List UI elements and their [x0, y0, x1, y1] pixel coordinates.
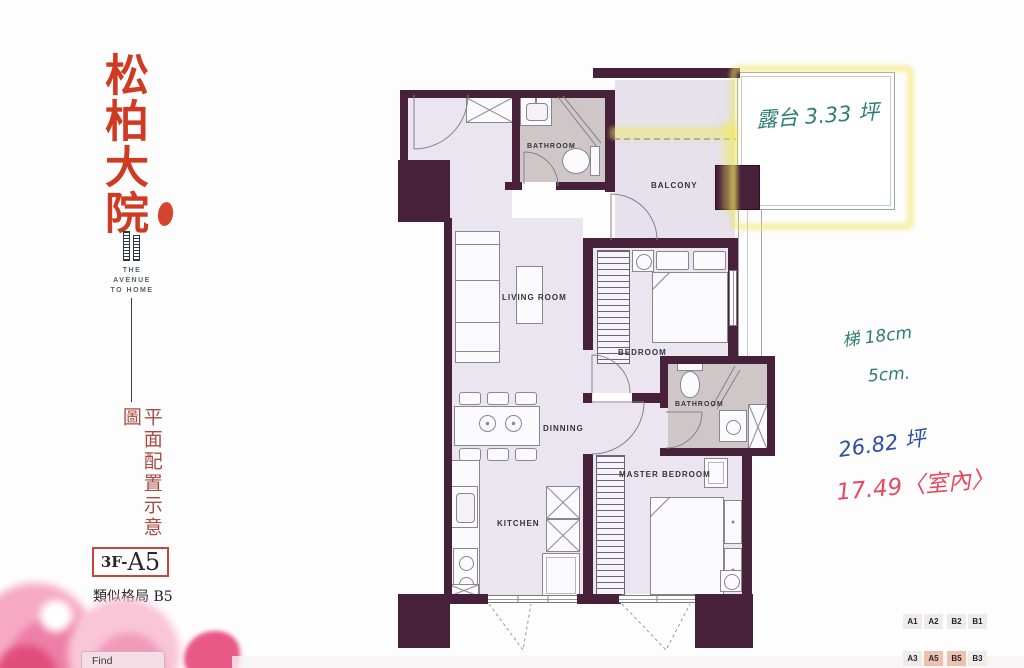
bathroom-master-toilet	[680, 371, 700, 398]
bathroom-top-toilet	[562, 148, 590, 174]
window-swing	[622, 604, 690, 650]
annotation-gap: 5cm.	[867, 364, 910, 387]
floor-plan-page: BATHROOM BALCONY LIVING ROOM BEDROOM DIN…	[0, 0, 1024, 668]
annotation-total-area: 26.82 坪	[836, 422, 927, 464]
wall	[593, 238, 738, 248]
dining-chair	[515, 392, 537, 405]
dining-chair	[459, 392, 481, 405]
bathroom-master-cabinet	[748, 404, 768, 450]
room-label-bathroom-top: BATHROOM	[527, 143, 576, 150]
master-bed	[650, 497, 724, 595]
tagline-line: TO HOME	[99, 286, 165, 296]
bathroom-top-toilet-tank	[590, 146, 600, 176]
kitchen-cabinet-x	[546, 486, 580, 519]
dining-chair	[487, 448, 509, 461]
dining-chair	[487, 392, 509, 405]
annotation-indoor-area: 17.49〈室內〉	[835, 459, 995, 507]
dining-table	[454, 406, 540, 446]
plan-caption-vertical: 平面配置示意圖	[120, 407, 162, 545]
towers-logo-icon	[121, 231, 143, 263]
room-label-balcony: BALCONY	[651, 181, 698, 190]
wall	[593, 68, 740, 78]
unit-code: A5	[128, 548, 161, 576]
wall	[583, 238, 593, 350]
wall	[444, 218, 452, 598]
keyplan-cell: B2	[947, 614, 966, 629]
column-highlight	[722, 120, 736, 212]
wall	[450, 594, 488, 604]
window	[488, 595, 577, 603]
wall	[632, 393, 668, 403]
wall	[660, 356, 775, 364]
kitchen-cabinet-x	[546, 519, 580, 552]
brand-tagline: THE AVENUE TO HOME	[99, 266, 165, 296]
wall	[398, 594, 450, 648]
terrace-highlight	[730, 65, 914, 230]
bathroom-top-sink	[520, 96, 552, 126]
room-label-living: LIVING ROOM	[502, 293, 567, 302]
master-fan-unit	[720, 570, 742, 592]
seal-stamp	[156, 201, 174, 227]
wall	[583, 393, 592, 403]
bedroom-pillow	[693, 251, 726, 270]
tagline-line: AVENUE	[99, 276, 165, 286]
wall	[742, 452, 752, 604]
tagline-line: THE	[99, 266, 165, 276]
room-label-kitchen: KITCHEN	[497, 519, 540, 528]
divider-line	[131, 298, 132, 402]
annotation-stair: 梯 18cm	[841, 318, 913, 351]
kitchen-cabinet	[542, 553, 580, 598]
keyplan-cell-highlighted: A5	[924, 651, 943, 666]
dining-burner	[479, 415, 496, 432]
kitchen-sink	[451, 486, 478, 528]
find-chip[interactable]: Find	[81, 651, 165, 668]
wall	[605, 90, 615, 192]
keyplan-cell: A3	[903, 651, 922, 666]
window-swing	[489, 604, 531, 650]
room-label-master: MASTER BEDROOM	[619, 470, 711, 479]
wall	[583, 454, 593, 598]
find-chip-label: Find	[92, 655, 112, 667]
room-label-bedroom: BEDROOM	[618, 348, 667, 357]
wall	[505, 182, 522, 190]
keyplan-cell: A1	[903, 614, 922, 629]
wall	[512, 90, 520, 185]
bedroom-window	[729, 270, 737, 326]
entry-cabinet	[466, 97, 513, 123]
keyplan-cell: B1	[968, 614, 987, 629]
dining-chair	[515, 448, 537, 461]
bedroom-bed	[652, 272, 728, 343]
balcony-highlight-band	[610, 127, 738, 139]
room-label-bathroom-master: BATHROOM	[675, 401, 724, 408]
wall	[556, 182, 615, 190]
keyplan-cell: A2	[924, 614, 943, 629]
room-label-dining: DINNING	[543, 424, 584, 433]
dining-burner	[505, 415, 522, 432]
master-pillow-cabinet	[724, 500, 742, 544]
sofa	[455, 231, 500, 363]
wall	[767, 356, 775, 456]
keyplan-cell-highlighted: B5	[947, 651, 966, 666]
bedroom-wardrobe	[597, 250, 630, 364]
wall	[398, 160, 450, 222]
keyplan-cell: B3	[968, 651, 987, 666]
unit-code-box: 3F- A5	[92, 547, 169, 577]
wall	[660, 448, 775, 456]
window	[619, 595, 695, 603]
bathroom-master-sink	[719, 410, 747, 442]
bedroom-pillow	[656, 251, 689, 270]
bedroom-washer	[632, 250, 654, 272]
balcony-floor	[615, 80, 735, 248]
wall	[400, 90, 612, 98]
brand-logo-calligraphy: 松柏大院	[100, 52, 144, 242]
wall	[400, 90, 408, 166]
terrace-side-strip	[738, 210, 762, 358]
unit-code-prefix: 3F-	[101, 553, 128, 571]
